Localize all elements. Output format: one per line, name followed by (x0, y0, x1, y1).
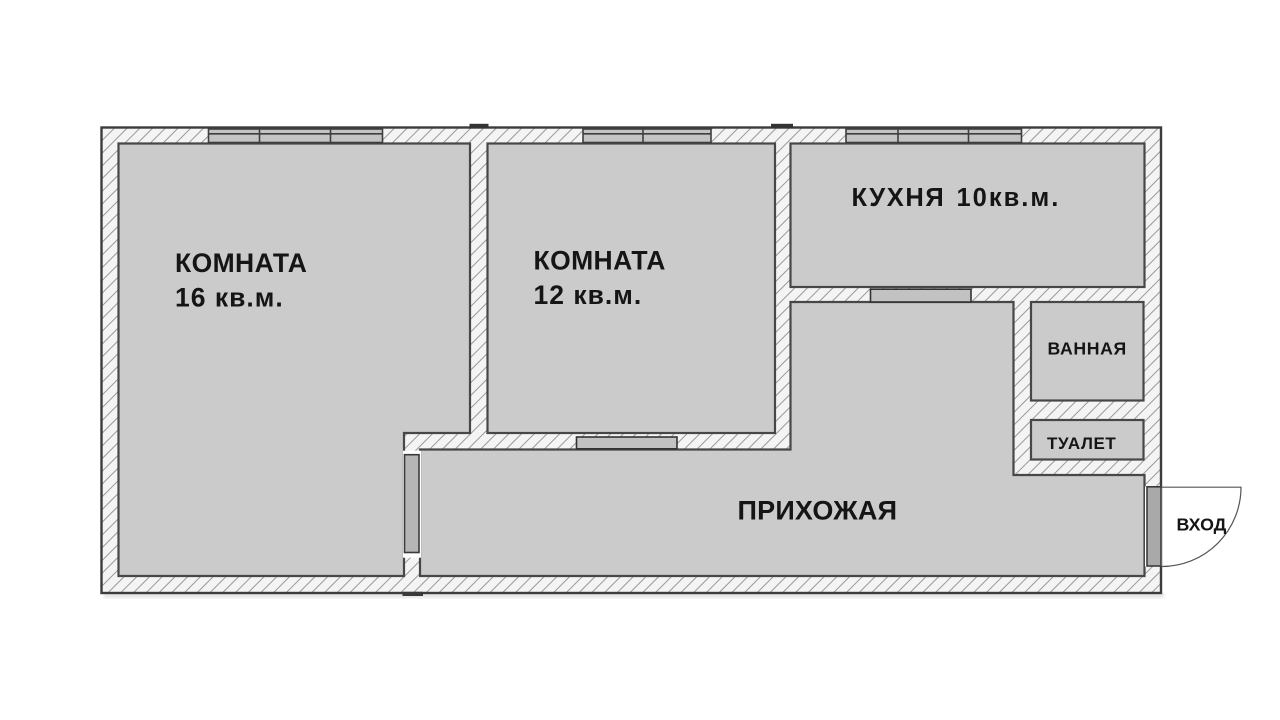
svg-text:ТУАЛЕТ: ТУАЛЕТ (1047, 434, 1116, 453)
svg-text:ВАННАЯ: ВАННАЯ (1048, 339, 1127, 359)
svg-text:10кв.м.: 10кв.м. (957, 184, 1061, 212)
svg-text:16 кв.м.: 16 кв.м. (175, 283, 284, 313)
svg-text:ВХОД: ВХОД (1177, 515, 1227, 535)
svg-text:КУХНЯ: КУХНЯ (852, 184, 946, 212)
svg-text:КОМНАТА: КОМНАТА (175, 248, 307, 278)
svg-text:ПРИХОЖАЯ: ПРИХОЖАЯ (738, 496, 898, 526)
svg-text:КОМНАТА: КОМНАТА (534, 246, 666, 276)
svg-text:12 кв.м.: 12 кв.м. (534, 280, 643, 310)
